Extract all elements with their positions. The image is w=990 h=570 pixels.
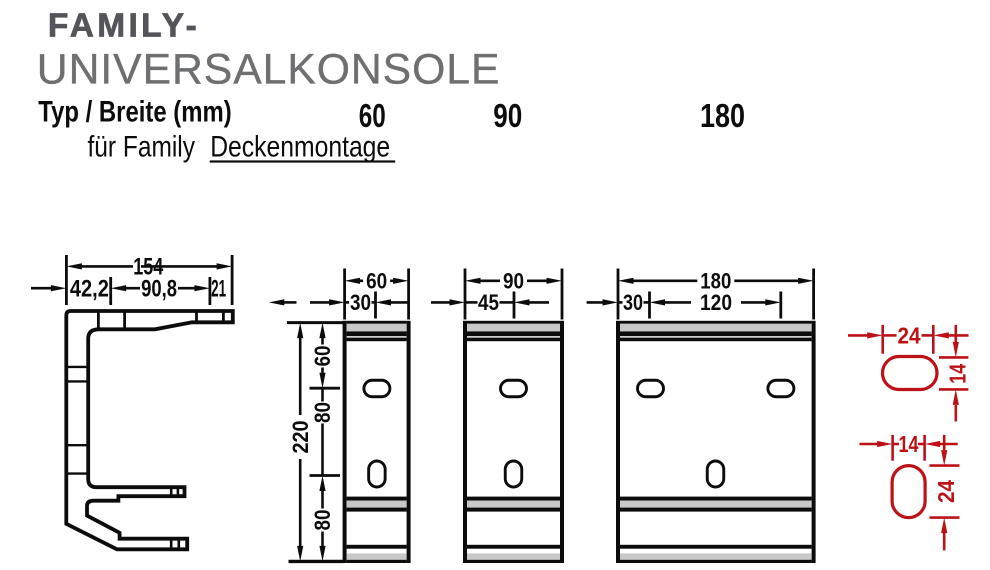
svg-text:80: 80 [310,510,335,531]
svg-text:24: 24 [898,322,921,348]
svg-text:für Family: für Family [88,131,196,164]
svg-text:180: 180 [700,98,745,135]
svg-text:FAMILY-: FAMILY- [48,8,200,45]
svg-text:60: 60 [359,98,386,135]
svg-text:24: 24 [933,480,959,503]
svg-text:120: 120 [700,290,732,315]
svg-text:Deckenmontage: Deckenmontage [210,131,390,164]
svg-text:UNIVERSALKONSOLE: UNIVERSALKONSOLE [37,45,501,93]
svg-text:14: 14 [945,364,971,384]
svg-text:60: 60 [310,346,335,367]
svg-text:90,8: 90,8 [141,275,177,302]
svg-text:30: 30 [623,290,643,315]
svg-text:45: 45 [478,290,499,315]
svg-text:30: 30 [350,290,371,315]
svg-text:220: 220 [288,421,313,454]
svg-text:80: 80 [310,402,335,423]
svg-text:90: 90 [503,269,524,294]
svg-text:21: 21 [211,275,226,302]
svg-text:90: 90 [493,98,522,135]
svg-text:42,2: 42,2 [70,275,109,302]
svg-text:14: 14 [899,431,919,457]
svg-text:Typ / Breite (mm): Typ / Breite (mm) [38,96,231,129]
